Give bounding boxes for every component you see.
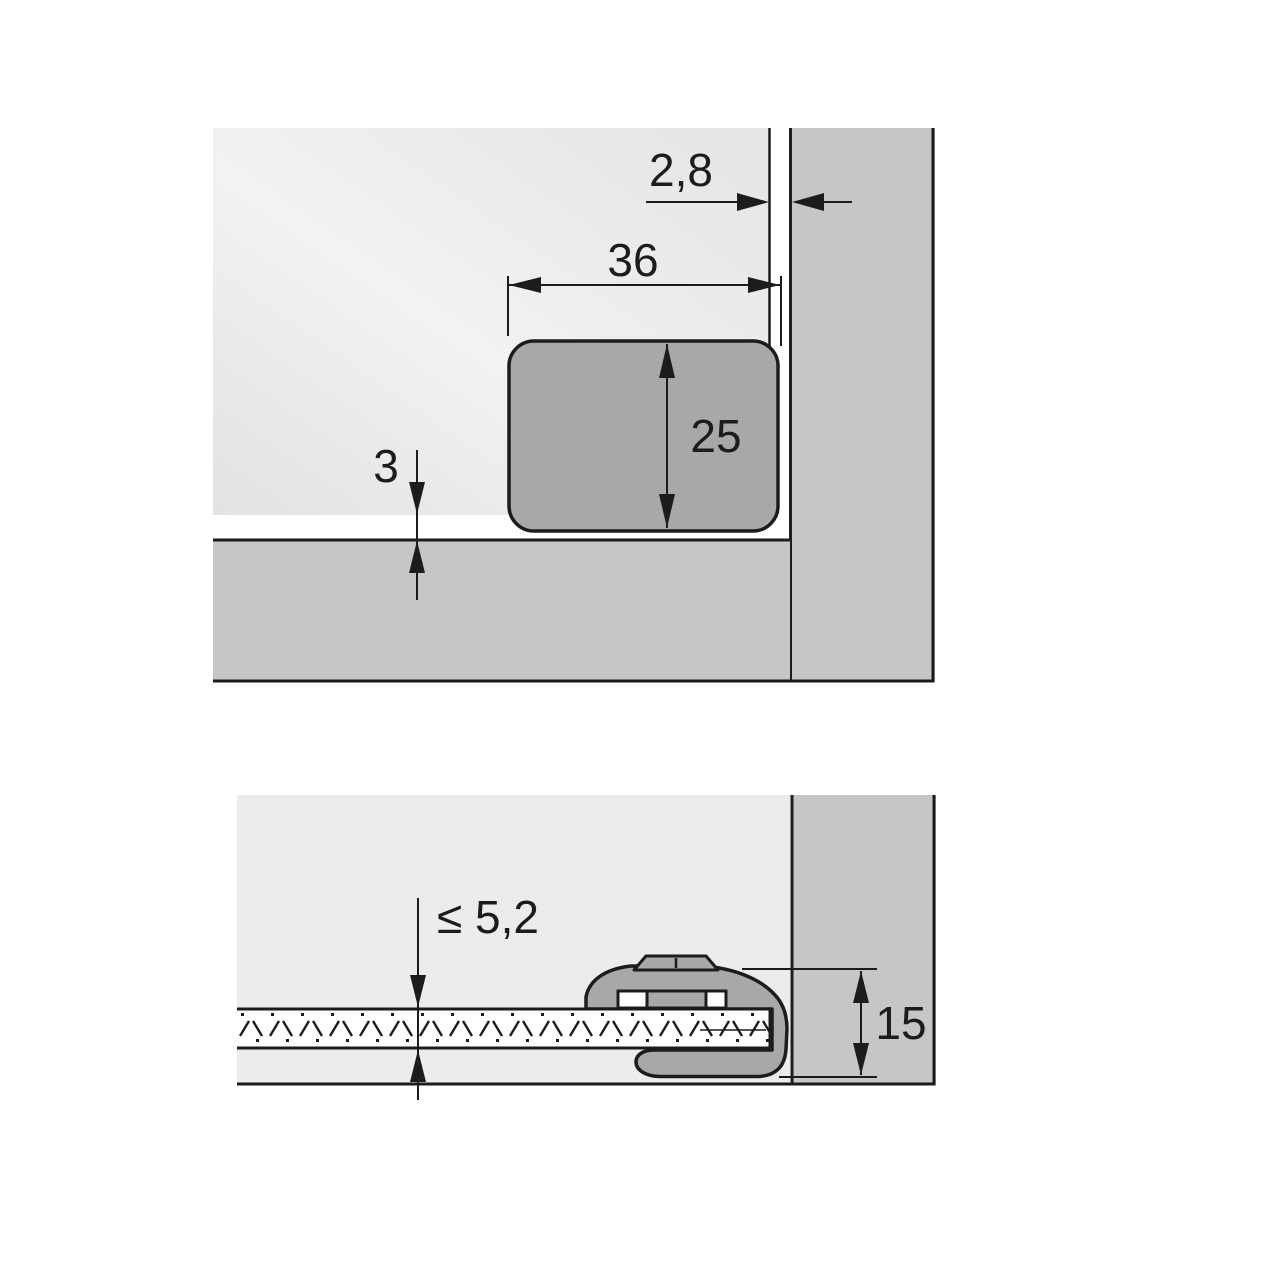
dim-label-door-side-gap: 2,8 (649, 144, 713, 196)
hinge-installation-drawing: 2,8 36 25 3 (0, 0, 1280, 1280)
glass-panel-section (237, 1009, 770, 1048)
cabinet-side-panel (789, 128, 935, 682)
dim-label-clamp-height: 15 (875, 997, 926, 1049)
dim-label-plate-width: 36 (607, 234, 658, 286)
dim-label-glass-thickness: ≤ 5,2 (437, 891, 539, 943)
dim-label-plate-height: 25 (690, 410, 741, 462)
dim-label-door-bottom-gap: 3 (373, 440, 399, 492)
cabinet-bottom-panel (213, 540, 790, 682)
technical-drawing-canvas: 2,8 36 25 3 (0, 0, 1280, 1280)
top-view-diagram: 2,8 36 25 3 (213, 128, 935, 682)
cross-section-diagram: ≤ 5,2 15 (237, 795, 936, 1100)
clamp-center-tab (647, 991, 706, 1008)
glass-hatch-pattern (237, 1011, 770, 1047)
